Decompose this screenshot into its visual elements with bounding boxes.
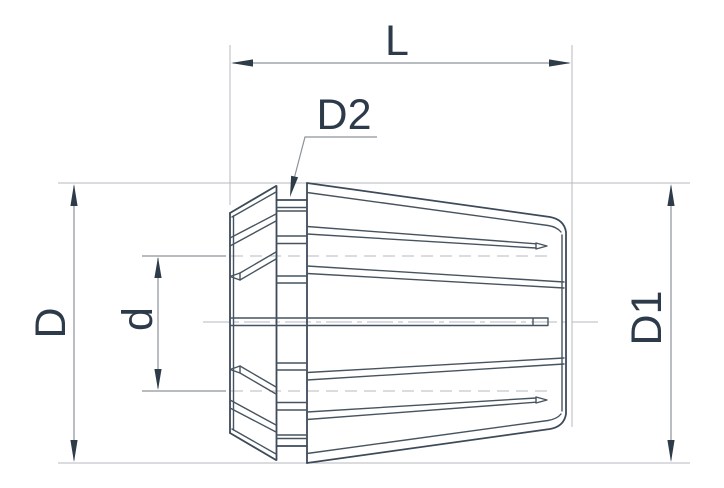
dimension-D1: D1 (623, 184, 675, 462)
groove-band-top (277, 208, 308, 212)
nose-taper-top (230, 186, 276, 213)
body-back-slot-lower (307, 358, 564, 380)
dimension-D2: D2 (290, 91, 377, 197)
collet-silhouette (230, 183, 566, 463)
body-front-slot-lower-end (536, 397, 547, 403)
body-edge-parallel-top (307, 193, 561, 233)
label-d: d (114, 307, 162, 331)
body-front-slot-lower (307, 398, 536, 420)
arrowhead-up-icon (70, 184, 77, 206)
collet-technical-drawing: L D2 D d D1 (0, 0, 724, 488)
reference-lines (203, 256, 598, 391)
nose-slot-lower (230, 400, 276, 432)
drawing-canvas: L D2 D d D1 (0, 0, 724, 488)
nose-chamfer-top (232, 192, 276, 217)
collet-body (230, 183, 566, 463)
label-D2: D2 (317, 91, 372, 139)
arrowhead-up-icon (667, 184, 674, 206)
nose-backslot-lower-end (230, 366, 240, 373)
nose-backslot-upper-end (230, 273, 240, 280)
leader-line-D2 (294, 137, 377, 179)
arrowhead-down-icon (70, 440, 77, 462)
groove-band-bottom (277, 435, 308, 439)
arrowhead-down-icon (290, 176, 298, 197)
nose-taper-bottom (230, 433, 276, 460)
groove-slot-lower-2 (277, 363, 308, 370)
dimension-L: L (231, 17, 571, 67)
groove-slot-lower-1 (277, 403, 308, 411)
arrowhead-left-icon (231, 59, 253, 66)
nose-slot-upper (230, 214, 276, 246)
arrowhead-up-icon (154, 257, 161, 278)
dimension-d: d (114, 257, 162, 390)
extension-lines (58, 45, 690, 463)
arrowhead-right-icon (549, 59, 571, 66)
dimension-D: D (27, 184, 78, 462)
arrowhead-down-icon (154, 369, 161, 390)
body-back-slot-upper (307, 266, 564, 288)
label-D1: D1 (623, 291, 671, 346)
collet-details (230, 192, 564, 454)
groove-slot-upper-2 (277, 276, 308, 283)
body-front-slot-upper-end (536, 243, 547, 249)
body-front-slot-upper (307, 227, 536, 249)
body-outline (307, 183, 566, 463)
label-L: L (385, 17, 409, 65)
groove-slot-upper-1 (277, 236, 308, 244)
label-D: D (27, 307, 75, 338)
nose-chamfer-bottom (232, 429, 276, 454)
arrowhead-down-icon (667, 440, 674, 462)
nose-backslot-lower (240, 366, 276, 394)
body-edge-parallel-bottom (307, 414, 561, 454)
